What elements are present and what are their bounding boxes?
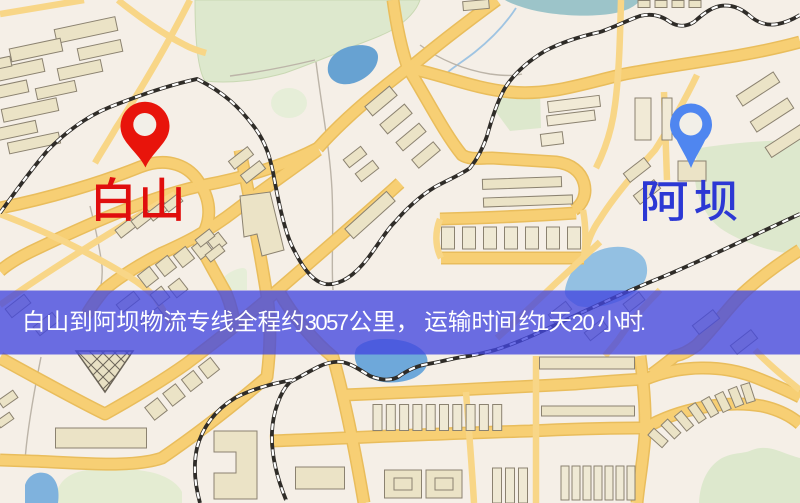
svg-text:3057: 3057 (305, 310, 349, 335)
svg-text:.: . (640, 310, 646, 335)
svg-text:1: 1 (537, 310, 549, 335)
svg-text:20: 20 (572, 310, 595, 335)
